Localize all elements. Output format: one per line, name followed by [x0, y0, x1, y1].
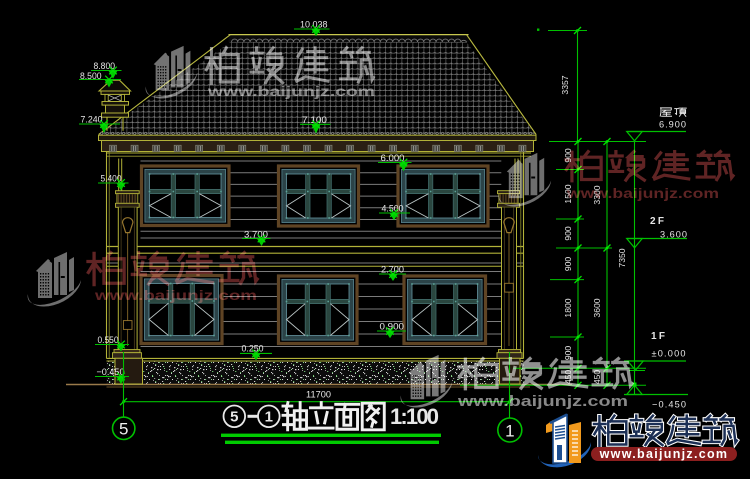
svg-text:1: 1 — [505, 422, 514, 441]
svg-text:900: 900 — [563, 226, 573, 241]
svg-text:1:100: 1:100 — [390, 404, 439, 429]
svg-text:6.900: 6.900 — [659, 120, 686, 130]
svg-text:3357: 3357 — [560, 75, 570, 94]
svg-text:2F: 2F — [650, 216, 664, 227]
svg-text:−0.450: −0.450 — [652, 400, 686, 410]
svg-text:7.240: 7.240 — [81, 115, 103, 125]
svg-text:1F: 1F — [651, 331, 665, 342]
svg-text:www.baijunjz.com: www.baijunjz.com — [457, 393, 628, 410]
svg-text:5.400: 5.400 — [101, 174, 122, 184]
svg-text:www.baijunjz.com: www.baijunjz.com — [207, 83, 375, 99]
svg-text:6.000: 6.000 — [381, 153, 405, 163]
svg-text:900: 900 — [563, 257, 573, 272]
svg-text:1: 1 — [265, 409, 273, 426]
svg-text:0.550: 0.550 — [98, 335, 119, 345]
svg-text:11700: 11700 — [306, 390, 331, 400]
svg-text:0.250: 0.250 — [242, 344, 264, 354]
svg-text:www.baijunjz.com: www.baijunjz.com — [94, 287, 257, 303]
svg-text:www.baijunjz.com: www.baijunjz.com — [599, 447, 729, 461]
svg-text:3.600: 3.600 — [660, 230, 687, 240]
svg-text:3.700: 3.700 — [244, 229, 268, 239]
svg-text:5: 5 — [230, 409, 238, 426]
svg-text:3600: 3600 — [592, 298, 602, 317]
svg-text:7350: 7350 — [617, 248, 627, 267]
svg-text:www.baijunjz.com: www.baijunjz.com — [566, 185, 719, 201]
svg-text:10.038: 10.038 — [300, 20, 328, 30]
svg-text:5: 5 — [119, 420, 128, 439]
svg-text:1800: 1800 — [563, 298, 573, 317]
svg-text:0.900: 0.900 — [380, 322, 405, 332]
